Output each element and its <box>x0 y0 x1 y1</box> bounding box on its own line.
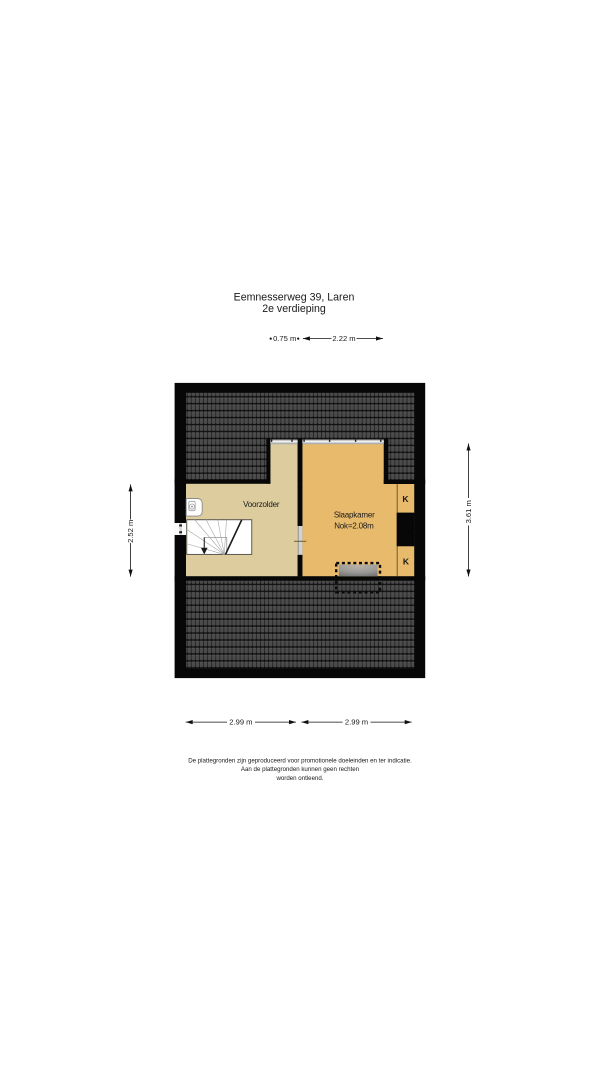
svg-text:K: K <box>403 556 410 566</box>
svg-text:Slaapkamer: Slaapkamer <box>334 511 375 520</box>
svg-text:2.99 m: 2.99 m <box>345 718 368 727</box>
svg-text:Voorzolder: Voorzolder <box>243 500 280 509</box>
svg-text:2.52 m: 2.52 m <box>126 520 135 543</box>
svg-text:worden ontleend.: worden ontleend. <box>275 775 323 782</box>
svg-text:3.61 m: 3.61 m <box>464 500 473 523</box>
svg-text:Aan de plattegronden kunnen ge: Aan de plattegronden kunnen geen rechten <box>241 766 360 773</box>
svg-text:K: K <box>402 494 409 504</box>
svg-text:0.75 m: 0.75 m <box>273 334 296 343</box>
svg-text:2.22 m: 2.22 m <box>332 334 355 343</box>
svg-text:2.99 m: 2.99 m <box>229 718 252 727</box>
svg-text:Eemnesserweg 39, Laren: Eemnesserweg 39, Laren <box>234 292 355 304</box>
svg-text:2e verdieping: 2e verdieping <box>262 303 326 315</box>
svg-text:Nok=2.08m: Nok=2.08m <box>334 522 374 531</box>
svg-text:De plattegronden zijn geproduc: De plattegronden zijn geproduceerd voor … <box>188 757 412 764</box>
